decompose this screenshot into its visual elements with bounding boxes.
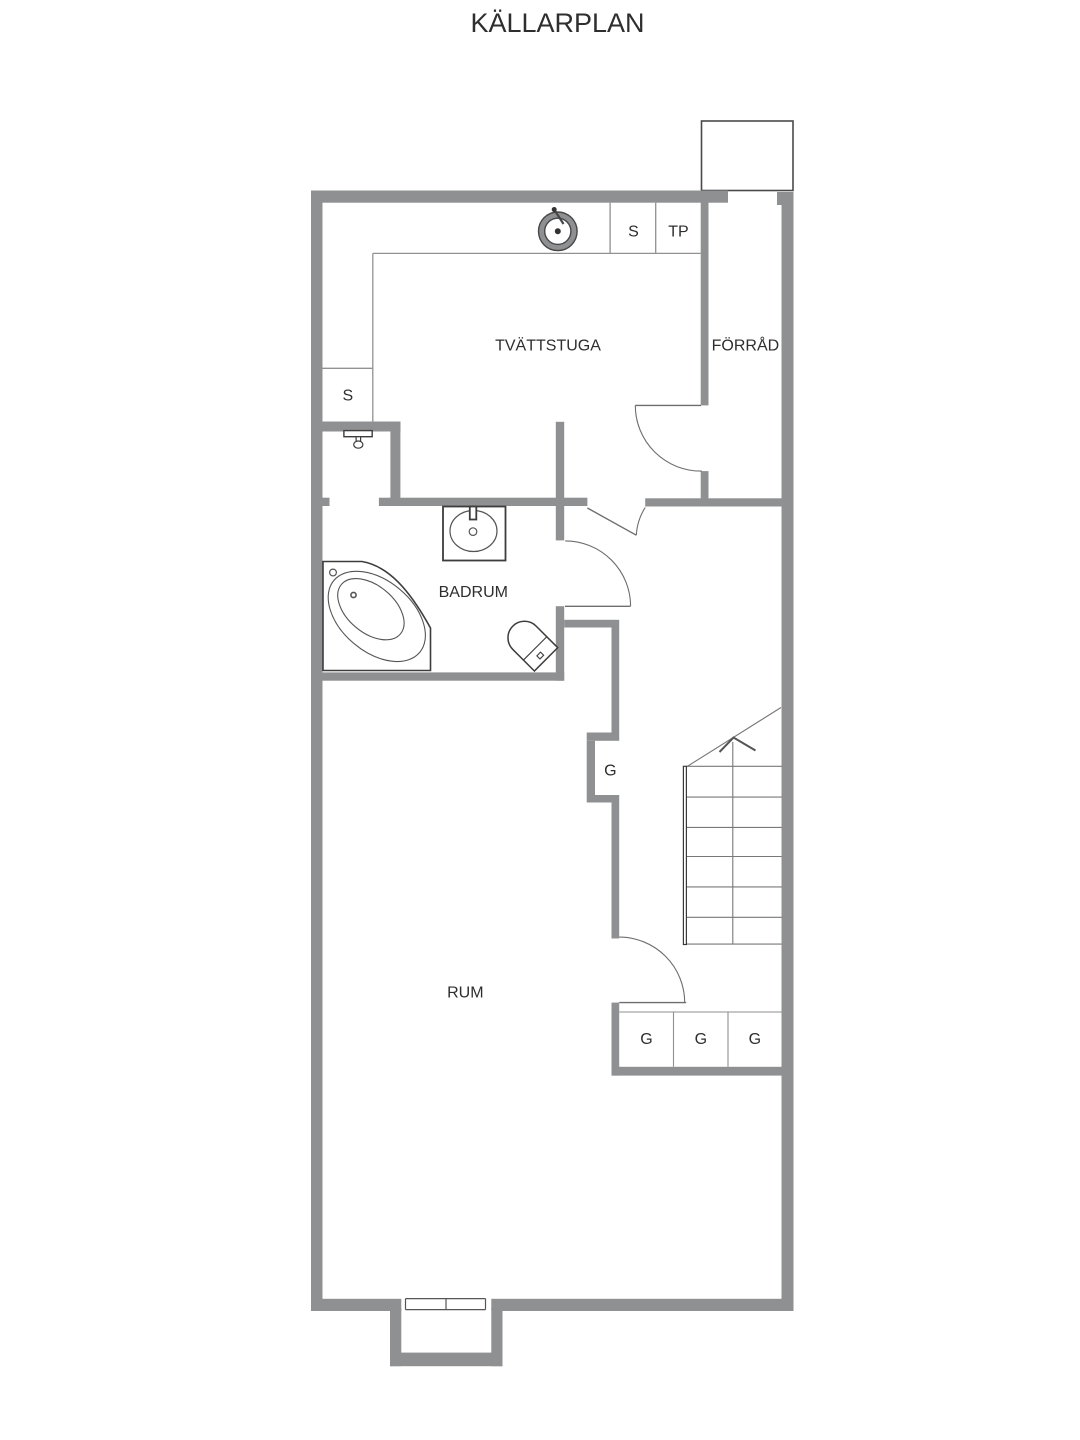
svg-text:TVÄTTSTUGA: TVÄTTSTUGA xyxy=(495,337,601,355)
svg-text:FÖRRÅD: FÖRRÅD xyxy=(712,335,780,354)
svg-text:S: S xyxy=(628,223,639,240)
svg-text:G: G xyxy=(749,1031,761,1048)
svg-text:TP: TP xyxy=(668,223,688,240)
svg-text:BADRUM: BADRUM xyxy=(439,584,508,601)
svg-text:S: S xyxy=(342,387,353,404)
svg-text:G: G xyxy=(640,1031,652,1048)
svg-text:G: G xyxy=(695,1031,707,1048)
svg-text:RUM: RUM xyxy=(447,985,483,1002)
svg-text:KÄLLARPLAN: KÄLLARPLAN xyxy=(470,8,644,38)
svg-text:G: G xyxy=(604,763,616,780)
